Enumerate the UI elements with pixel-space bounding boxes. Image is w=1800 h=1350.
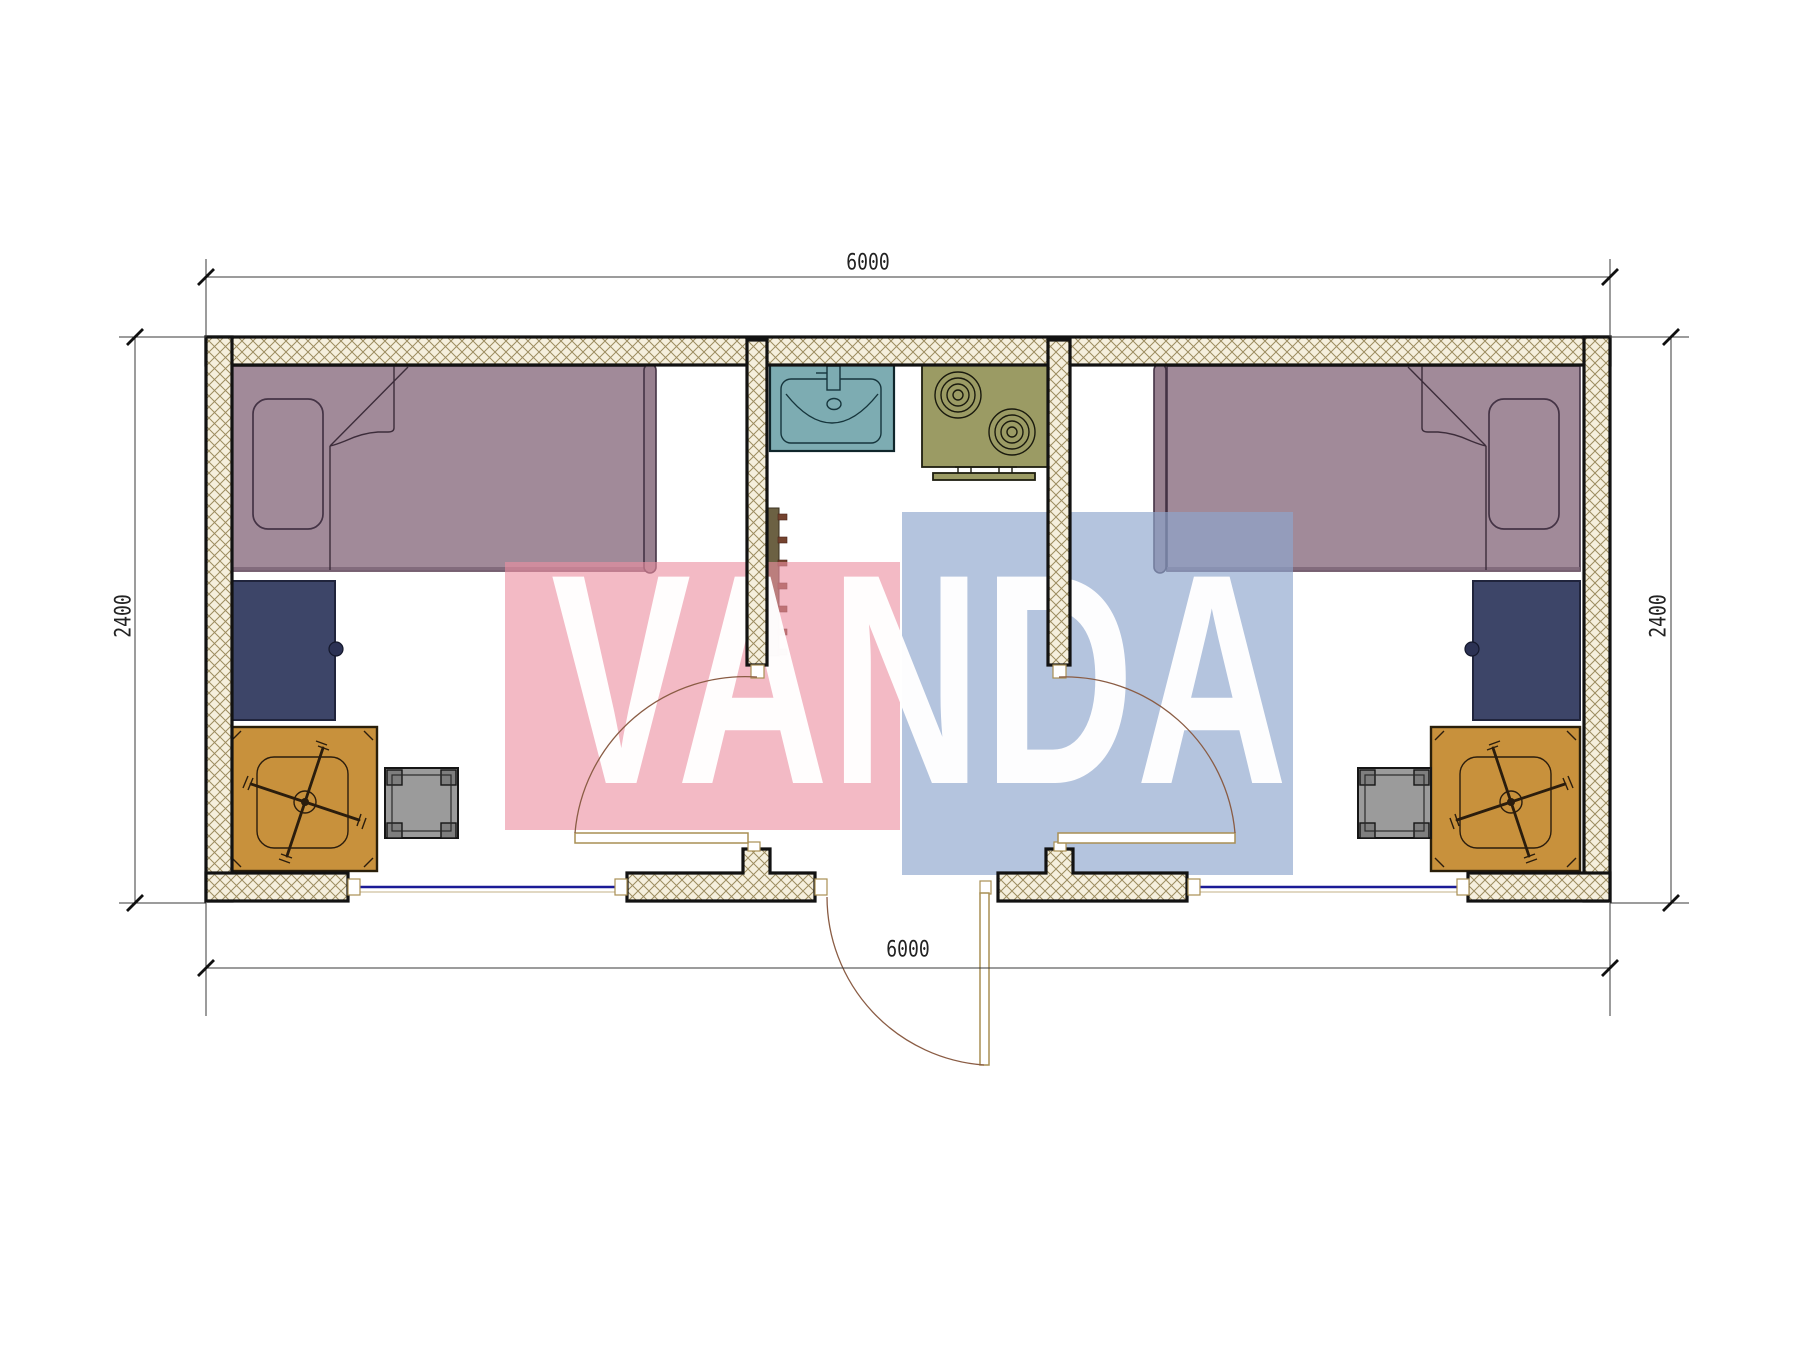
wall-bottom-left-corner — [206, 873, 348, 901]
doors — [575, 677, 1235, 1065]
door-swing-arc-entrance — [827, 897, 984, 1065]
door-swing-arc-right-room — [1059, 677, 1235, 833]
partition-left — [747, 340, 767, 665]
dimension-lines — [119, 259, 1689, 1016]
wall-bottom-right-corner — [1468, 873, 1610, 901]
door-leaf-right-room — [1058, 833, 1235, 843]
door-leaf-entrance — [980, 893, 989, 1065]
door-swing-arc-left-room — [575, 677, 757, 833]
interior-partitions — [747, 340, 1070, 665]
floor-plan-canvas: VANDA — [0, 0, 1800, 1350]
exterior-walls — [206, 337, 1610, 901]
dimension-label-top: 6000 — [846, 251, 889, 276]
wall-bottom-right-pier — [998, 849, 1187, 901]
wall-top — [206, 337, 1610, 365]
dimension-label-right: 2400 — [1647, 594, 1672, 637]
dimension-label-bottom: 6000 — [886, 938, 929, 963]
wall-right — [1584, 337, 1610, 901]
partition-right — [1048, 340, 1070, 665]
dimension-label-left: 2400 — [112, 594, 137, 637]
frame-stubs — [348, 665, 1469, 895]
door-leaf-left-room — [575, 833, 748, 843]
wall-left — [206, 337, 232, 901]
windows — [360, 887, 1457, 892]
wall-bottom-left-pier — [627, 849, 815, 901]
walls-and-dimensions-layer — [0, 0, 1800, 1350]
